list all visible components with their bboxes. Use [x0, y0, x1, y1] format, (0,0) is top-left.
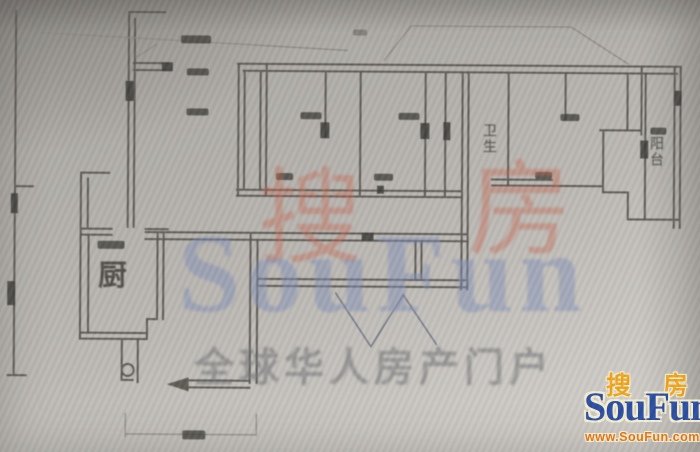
bathroom-room-label: 卫生	[483, 123, 497, 155]
soufun-logo: 搜 房 SouFun www.SouFun.com	[584, 374, 700, 450]
door-swings	[335, 292, 437, 347]
dimension-lines	[36, 23, 629, 440]
bottom-wall-arrowhead	[167, 377, 189, 391]
kitchen-room-label: 厨	[98, 262, 127, 291]
walls	[8, 11, 682, 395]
logo-url-text: www.SouFun.com	[585, 431, 700, 444]
balcony-room-label: 阳台	[650, 136, 664, 168]
logo-soufun-text: SouFun	[584, 387, 700, 427]
drain-symbol	[122, 364, 134, 376]
floorplan-photo: 厨 卫生 阳台 搜 房 SouFun 全球华人房产门户 搜 房 SouFun w…	[0, 0, 700, 452]
